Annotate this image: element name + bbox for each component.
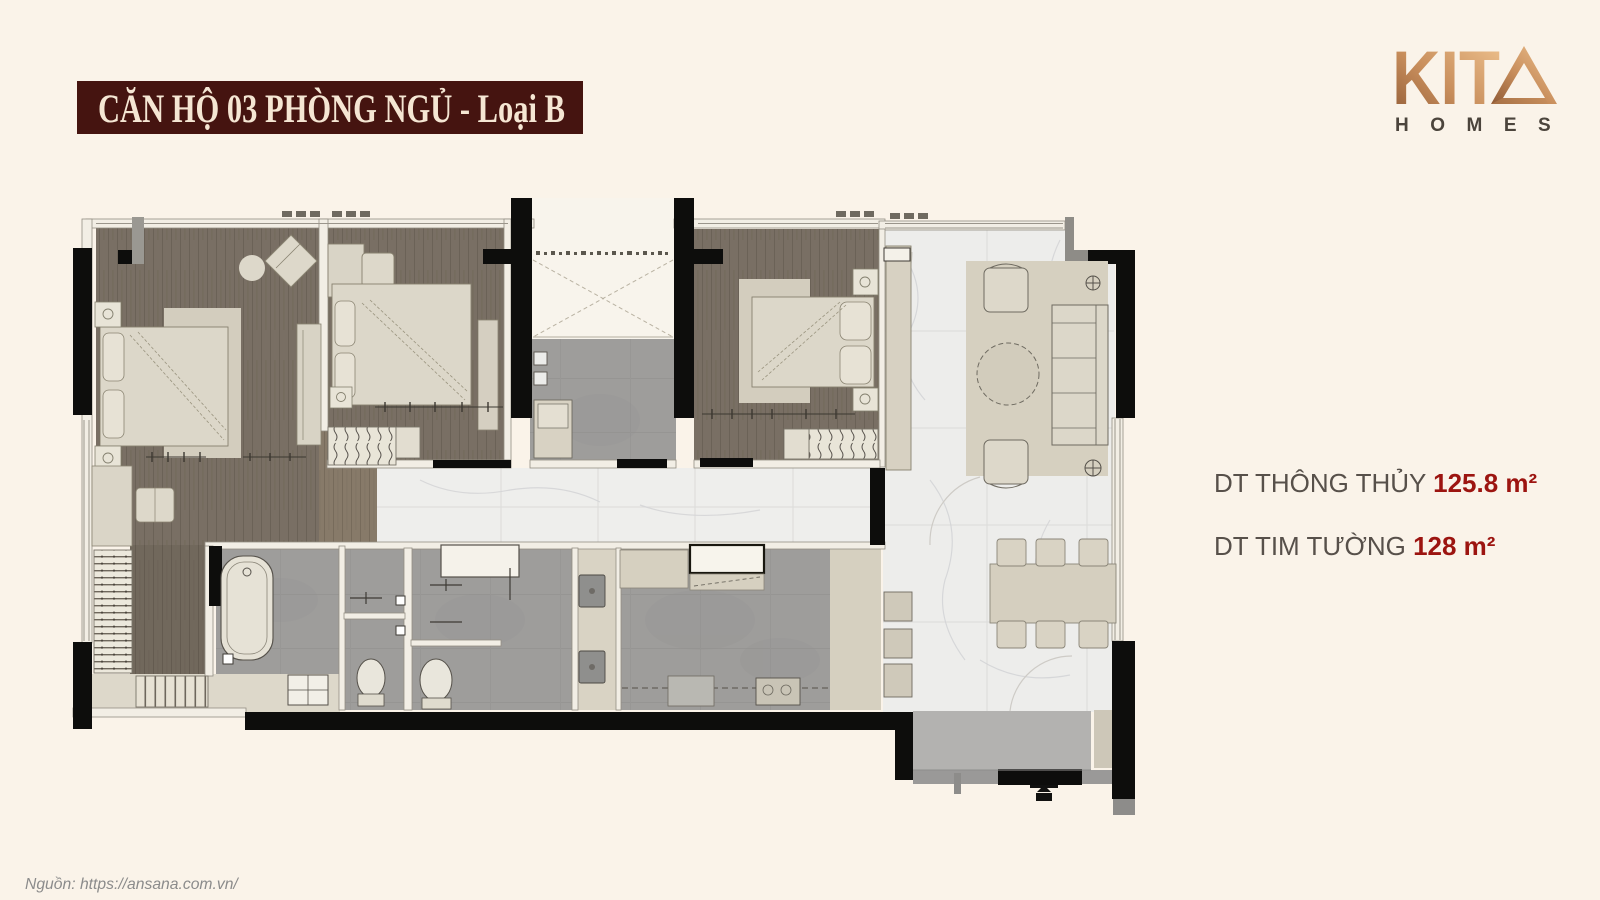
svg-text:CĂN HỘ 03 PHÒNG NGỦ - Loại B: CĂN HỘ 03 PHÒNG NGỦ - Loại B <box>98 86 565 131</box>
svg-text:DT TIM TƯỜNG 128 m²: DT TIM TƯỜNG 128 m² <box>1214 531 1496 561</box>
svg-text:HOMES: HOMES <box>1395 115 1572 136</box>
svg-text:KIT: KIT <box>1392 36 1500 121</box>
svg-text:Nguồn: https://ansana.com.vn/: Nguồn: https://ansana.com.vn/ <box>25 876 239 893</box>
svg-text:DT THÔNG THỦY 125.8 m²: DT THÔNG THỦY 125.8 m² <box>1214 467 1538 498</box>
